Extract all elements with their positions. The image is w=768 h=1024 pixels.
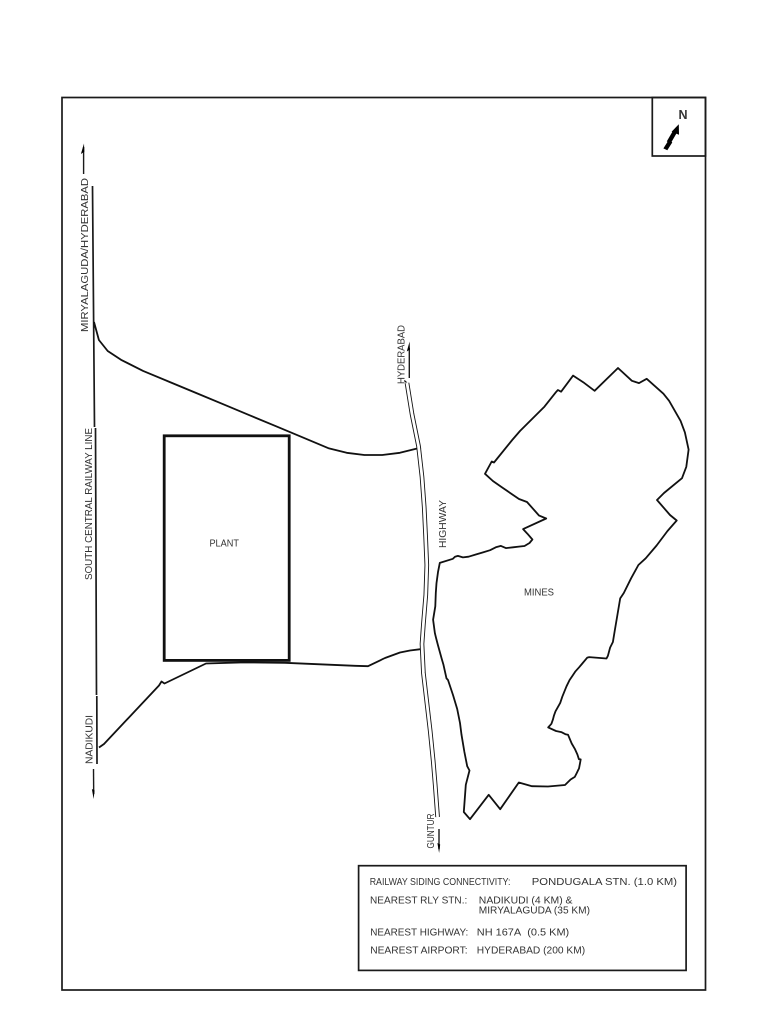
svg-text:HYDERABAD: HYDERABAD	[397, 325, 408, 384]
svg-text:NADIKUDI: NADIKUDI	[85, 715, 96, 764]
svg-text:NEAREST RLY STN.:: NEAREST RLY STN.:	[370, 896, 467, 907]
svg-text:PONDUGALA STN. (1.0 KM): PONDUGALA STN. (1.0 KM)	[532, 877, 677, 888]
svg-text:PLANT: PLANT	[209, 539, 239, 550]
svg-text:HYDERABAD (200 KM): HYDERABAD (200 KM)	[477, 946, 585, 957]
svg-text:NEAREST AIRPORT:: NEAREST AIRPORT:	[370, 946, 467, 957]
svg-text:RAILWAY SIDING CONNECTIVITY:: RAILWAY SIDING CONNECTIVITY:	[370, 877, 511, 888]
svg-text:NEAREST HIGHWAY:: NEAREST HIGHWAY:	[370, 928, 468, 939]
svg-text:HIGHWAY: HIGHWAY	[438, 500, 449, 548]
svg-text:MIRYALAGUDA/HYDERABAD: MIRYALAGUDA/HYDERABAD	[80, 178, 91, 332]
svg-text:MINES: MINES	[524, 588, 554, 599]
svg-text:MIRYALAGUDA (35 KM): MIRYALAGUDA (35 KM)	[479, 906, 590, 917]
svg-text:GUNTUR: GUNTUR	[426, 814, 437, 849]
svg-text:NH 167A (0.5 KM): NH 167A (0.5 KM)	[477, 928, 569, 939]
svg-text:SOUTH CENTRAL RAILWAY LINE: SOUTH CENTRAL RAILWAY LINE	[84, 428, 95, 580]
svg-text:N: N	[678, 108, 687, 122]
